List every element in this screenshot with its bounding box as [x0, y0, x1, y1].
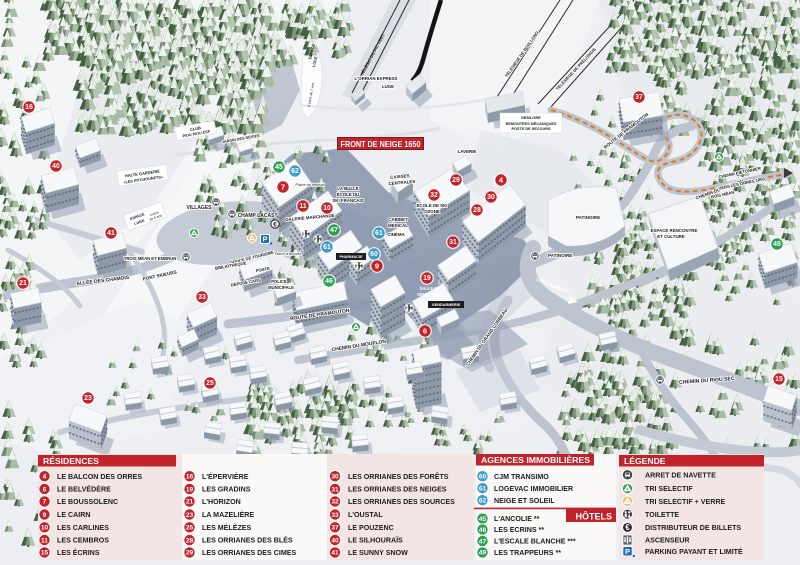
- svg-text:CHAMP LACAS: CHAMP LACAS: [238, 213, 276, 219]
- svg-text:29: 29: [452, 177, 460, 184]
- svg-text:LES ECRINS **: LES ECRINS **: [494, 526, 544, 534]
- svg-text:47: 47: [330, 227, 338, 234]
- svg-text:23: 23: [186, 512, 194, 519]
- svg-text:GENDARMERIE: GENDARMERIE: [432, 303, 461, 307]
- svg-text:AGENCES IMMOBILIÈRES: AGENCES IMMOBILIÈRES: [481, 454, 590, 465]
- svg-text:POSTE DE SECOURS: POSTE DE SECOURS: [511, 127, 550, 131]
- svg-text:LUGE: LUGE: [382, 84, 394, 89]
- svg-text:L'ESCALE BLANCHE ***: L'ESCALE BLANCHE ***: [494, 538, 576, 546]
- svg-text:10: 10: [41, 525, 49, 532]
- svg-text:SKI FRANÇAIS: SKI FRANÇAIS: [332, 198, 363, 203]
- svg-text:15: 15: [775, 376, 783, 383]
- svg-text:31: 31: [449, 239, 457, 246]
- svg-text:LES ORRIANES DES CIMES: LES ORRIANES DES CIMES: [202, 549, 296, 557]
- svg-text:49: 49: [773, 241, 781, 248]
- svg-text:L'ORRIAN EXPRESS: L'ORRIAN EXPRESS: [354, 76, 397, 81]
- svg-text:PARKING PAYANT ET LIMITÉ: PARKING PAYANT ET LIMITÉ: [645, 547, 743, 556]
- svg-text:40: 40: [52, 163, 60, 170]
- svg-text:62: 62: [291, 168, 299, 175]
- svg-text:LES CEMBROS: LES CEMBROS: [57, 537, 109, 545]
- svg-text:60: 60: [370, 251, 378, 258]
- svg-text:29: 29: [186, 550, 194, 557]
- svg-text:31: 31: [331, 486, 339, 493]
- svg-text:32: 32: [430, 192, 438, 199]
- svg-text:15: 15: [41, 550, 49, 557]
- svg-text:7: 7: [281, 182, 285, 191]
- svg-text:16: 16: [186, 474, 194, 481]
- svg-text:ÉCOLE DU: ÉCOLE DU: [337, 192, 360, 197]
- svg-text:€: €: [625, 523, 630, 532]
- svg-text:CABINET: CABINET: [388, 217, 408, 222]
- svg-text:L'ANCOLIE **: L'ANCOLIE **: [494, 515, 540, 523]
- svg-text:46: 46: [325, 278, 333, 285]
- svg-text:TROIS MÉAN ET EMBRUN: TROIS MÉAN ET EMBRUN: [124, 256, 176, 261]
- svg-text:TOILETTE: TOILETTE: [645, 511, 679, 519]
- svg-text:40: 40: [331, 537, 339, 544]
- svg-text:MUNICIPALE: MUNICIPALE: [268, 285, 294, 290]
- svg-text:30: 30: [331, 474, 339, 481]
- svg-text:9: 9: [375, 261, 379, 270]
- svg-text:19: 19: [186, 486, 194, 493]
- svg-text:LES ORRIANES DES FORÊTS: LES ORRIANES DES FORÊTS: [348, 472, 449, 481]
- svg-text:€: €: [273, 222, 277, 229]
- svg-text:28: 28: [473, 207, 481, 214]
- svg-text:VILLAGES: VILLAGES: [186, 205, 212, 211]
- svg-text:11: 11: [41, 537, 48, 544]
- svg-text:LOGEVAC IMMOBILIER: LOGEVAC IMMOBILIER: [494, 485, 573, 493]
- svg-text:Place du festival: Place du festival: [295, 182, 324, 187]
- svg-text:LES MÉLÈZES: LES MÉLÈZES: [202, 523, 252, 532]
- svg-text:LE POUZENC: LE POUZENC: [348, 524, 394, 532]
- svg-text:TRI SELECTIF: TRI SELECTIF: [645, 485, 693, 493]
- svg-text:LE SUNNY SNOW: LE SUNNY SNOW: [348, 549, 408, 557]
- svg-text:62: 62: [479, 498, 487, 505]
- svg-text:LES ORRIANES DES NEIGES: LES ORRIANES DES NEIGES: [348, 486, 447, 494]
- svg-text:23: 23: [84, 395, 92, 402]
- svg-text:CJM TRANSIMO: CJM TRANSIMO: [494, 473, 549, 481]
- svg-text:SEMLORE: SEMLORE: [521, 115, 541, 120]
- svg-text:LE BOUSSOLENC: LE BOUSSOLENC: [57, 498, 118, 506]
- svg-text:LES ORRIANES DES SOURCES: LES ORRIANES DES SOURCES: [348, 498, 455, 506]
- svg-text:LE SILHOURAÏS: LE SILHOURAÏS: [348, 537, 403, 545]
- svg-text:TRI SELECTIF + VERRE: TRI SELECTIF + VERRE: [645, 498, 725, 506]
- svg-text:LE BALCON DES ORRES: LE BALCON DES ORRES: [57, 473, 142, 481]
- svg-text:21: 21: [186, 499, 194, 506]
- svg-text:SÉMINAIRES: SÉMINAIRES: [417, 292, 443, 297]
- svg-text:37: 37: [635, 94, 643, 101]
- svg-text:41: 41: [331, 550, 339, 557]
- svg-text:45: 45: [479, 516, 487, 523]
- svg-text:DISTRIBUTEUR DE BILLETS: DISTRIBUTEUR DE BILLETS: [645, 524, 741, 532]
- svg-text:LA BULLE: LA BULLE: [337, 186, 359, 191]
- svg-text:CINÉMA: CINÉMA: [387, 232, 405, 237]
- svg-text:25: 25: [206, 380, 214, 387]
- svg-text:L'ÉPERVIÈRE: L'ÉPERVIÈRE: [202, 472, 249, 481]
- svg-text:25: 25: [186, 525, 194, 532]
- svg-text:RÉSIDENCES: RÉSIDENCES: [43, 456, 99, 466]
- svg-text:LES TRAPPEURS **: LES TRAPPEURS **: [494, 549, 561, 557]
- svg-text:OZONE: OZONE: [424, 209, 440, 214]
- svg-text:LES CARLINES: LES CARLINES: [57, 524, 109, 532]
- svg-text:ET CULTURE: ET CULTURE: [657, 234, 685, 239]
- svg-text:61: 61: [375, 230, 383, 237]
- svg-text:LES GRADINS: LES GRADINS: [202, 486, 251, 494]
- svg-text:LA MAZELIÈRE: LA MAZELIÈRE: [202, 510, 254, 519]
- svg-text:47: 47: [479, 538, 487, 545]
- svg-text:33: 33: [331, 512, 339, 519]
- svg-text:33: 33: [198, 294, 206, 301]
- svg-text:32: 32: [331, 499, 339, 506]
- svg-text:4: 4: [43, 474, 47, 481]
- svg-text:LE BELVÉDÈRE: LE BELVÉDÈRE: [57, 485, 111, 494]
- svg-text:30: 30: [487, 194, 495, 201]
- svg-text:46: 46: [479, 527, 487, 534]
- svg-text:19: 19: [423, 275, 431, 282]
- svg-text:L'HORIZON: L'HORIZON: [202, 498, 241, 506]
- svg-text:LAVERIE: LAVERIE: [458, 149, 477, 154]
- svg-text:61: 61: [479, 486, 487, 493]
- svg-text:ASCENSEUR: ASCENSEUR: [645, 537, 690, 545]
- svg-text:6: 6: [423, 326, 427, 335]
- svg-text:ARRET DE NAVETTE: ARRET DE NAVETTE: [645, 471, 716, 479]
- svg-text:37: 37: [331, 525, 339, 532]
- svg-text:LE CAIRN: LE CAIRN: [57, 511, 91, 519]
- svg-text:POLICE: POLICE: [271, 279, 287, 284]
- svg-text:6: 6: [43, 486, 47, 493]
- svg-text:REMONTÉES MÉCANIQUES: REMONTÉES MÉCANIQUES: [506, 121, 557, 126]
- svg-text:21: 21: [19, 280, 27, 287]
- svg-text:Place d'accueil: Place d'accueil: [275, 251, 302, 256]
- svg-text:LÉGENDE: LÉGENDE: [624, 456, 666, 466]
- svg-text:MÉDICAL: MÉDICAL: [388, 223, 408, 228]
- svg-text:PATINOIRE: PATINOIRE: [576, 215, 600, 220]
- svg-text:28: 28: [186, 537, 194, 544]
- svg-text:PATINOIRE: PATINOIRE: [548, 253, 572, 258]
- svg-text:LES ORRIANES DES BLÉS: LES ORRIANES DES BLÉS: [202, 536, 293, 545]
- svg-text:11: 11: [299, 203, 306, 210]
- svg-text:P: P: [262, 235, 267, 244]
- svg-text:FRONT DE NEIGE 1650: FRONT DE NEIGE 1650: [341, 140, 421, 149]
- svg-text:NEIGE ET SOLEIL: NEIGE ET SOLEIL: [494, 497, 555, 505]
- svg-text:PHARMACIE: PHARMACIE: [340, 255, 363, 259]
- svg-text:41: 41: [107, 230, 115, 237]
- svg-text:9: 9: [43, 512, 47, 519]
- svg-text:16: 16: [25, 104, 33, 111]
- svg-text:P: P: [625, 547, 630, 556]
- svg-text:61: 61: [323, 244, 331, 251]
- svg-text:ÉCOLE DE SKI: ÉCOLE DE SKI: [417, 203, 448, 208]
- svg-text:L'OUSTAL: L'OUSTAL: [348, 511, 383, 519]
- svg-text:SALLE DE: SALLE DE: [420, 286, 441, 291]
- svg-text:60: 60: [479, 474, 487, 481]
- svg-text:49: 49: [479, 550, 487, 557]
- svg-text:HÔTELS: HÔTELS: [575, 511, 612, 522]
- svg-text:7: 7: [43, 499, 47, 506]
- svg-text:LES ÉCRINS: LES ÉCRINS: [57, 548, 100, 557]
- svg-text:45: 45: [275, 164, 283, 171]
- svg-text:ESPACE RENCONTRE: ESPACE RENCONTRE: [651, 228, 698, 233]
- svg-text:10: 10: [323, 205, 331, 212]
